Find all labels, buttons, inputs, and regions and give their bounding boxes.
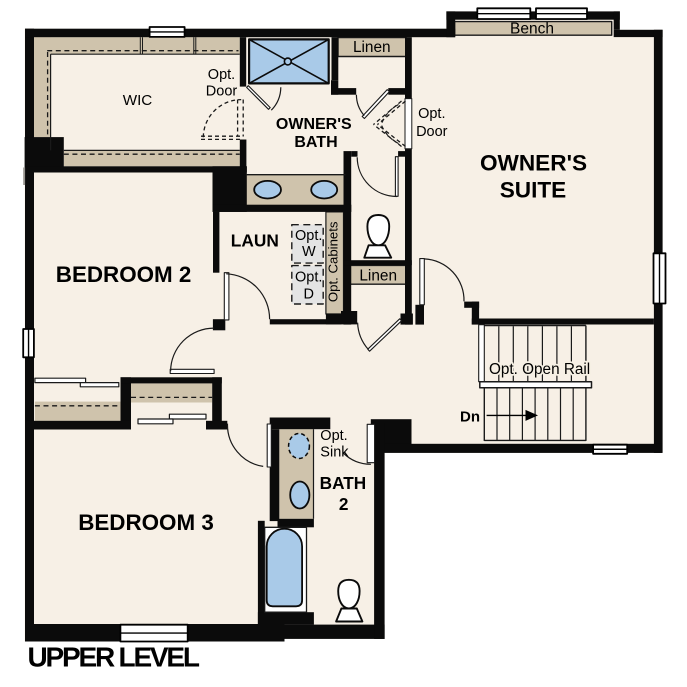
svg-text:Bench: Bench [510, 21, 554, 38]
svg-text:BEDROOM 2: BEDROOM 2 [56, 262, 192, 287]
svg-text:Door: Door [416, 124, 448, 140]
svg-text:WIC: WIC [123, 92, 153, 109]
svg-text:OWNER'S: OWNER'S [276, 116, 352, 133]
svg-text:BATH: BATH [294, 134, 337, 151]
svg-text:Opt.: Opt. [320, 428, 347, 444]
svg-text:SUITE: SUITE [500, 178, 567, 203]
svg-text:D: D [304, 286, 314, 302]
svg-text:Opt.: Opt. [295, 228, 322, 244]
svg-text:LAUN: LAUN [231, 230, 279, 250]
svg-text:BATH: BATH [320, 473, 366, 493]
svg-text:UPPER LEVEL: UPPER LEVEL [28, 641, 200, 672]
svg-text:Linen: Linen [359, 267, 397, 284]
svg-text:Sink: Sink [320, 445, 349, 461]
svg-text:Opt. Open Rail: Opt. Open Rail [489, 361, 590, 378]
svg-text:OWNER'S: OWNER'S [480, 151, 587, 176]
svg-text:BEDROOM 3: BEDROOM 3 [78, 510, 214, 535]
svg-text:Opt. Cabinets: Opt. Cabinets [325, 221, 340, 302]
svg-text:Opt.: Opt. [208, 67, 235, 83]
svg-text:W: W [302, 244, 316, 260]
svg-text:2: 2 [339, 494, 349, 514]
svg-text:Dn: Dn [460, 409, 480, 426]
svg-text:Opt.: Opt. [418, 106, 445, 122]
svg-text:Door: Door [206, 84, 238, 100]
svg-text:Opt.: Opt. [295, 269, 322, 285]
svg-text:Linen: Linen [353, 39, 391, 56]
